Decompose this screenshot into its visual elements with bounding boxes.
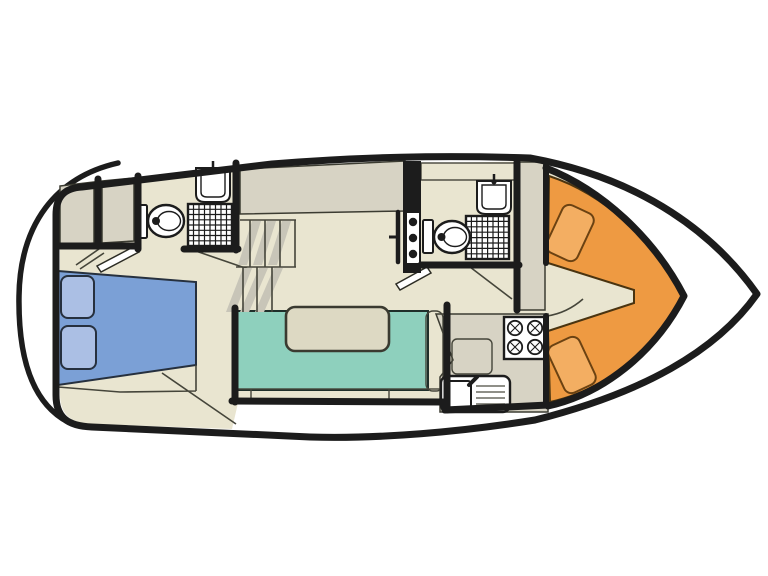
floor-plan-svg bbox=[0, 0, 768, 576]
wardrobe-right bbox=[102, 178, 134, 243]
pillow-bottom bbox=[61, 326, 96, 369]
saloon-dinette bbox=[237, 307, 443, 400]
dinette-table bbox=[286, 307, 389, 351]
toilet-flush bbox=[438, 233, 446, 241]
pillow-top bbox=[61, 276, 94, 318]
side-console bbox=[240, 161, 405, 214]
toilet-cistern bbox=[423, 220, 433, 253]
boat-deck-plan bbox=[0, 0, 768, 576]
bulkhead-dot-2 bbox=[409, 234, 417, 242]
bulkhead-dot-1 bbox=[409, 218, 417, 226]
washbasin-tap-dot bbox=[492, 180, 497, 185]
forward-wardrobe-column bbox=[519, 162, 545, 310]
bulkhead-dot-3 bbox=[409, 250, 417, 258]
toilet-flush bbox=[152, 217, 160, 225]
